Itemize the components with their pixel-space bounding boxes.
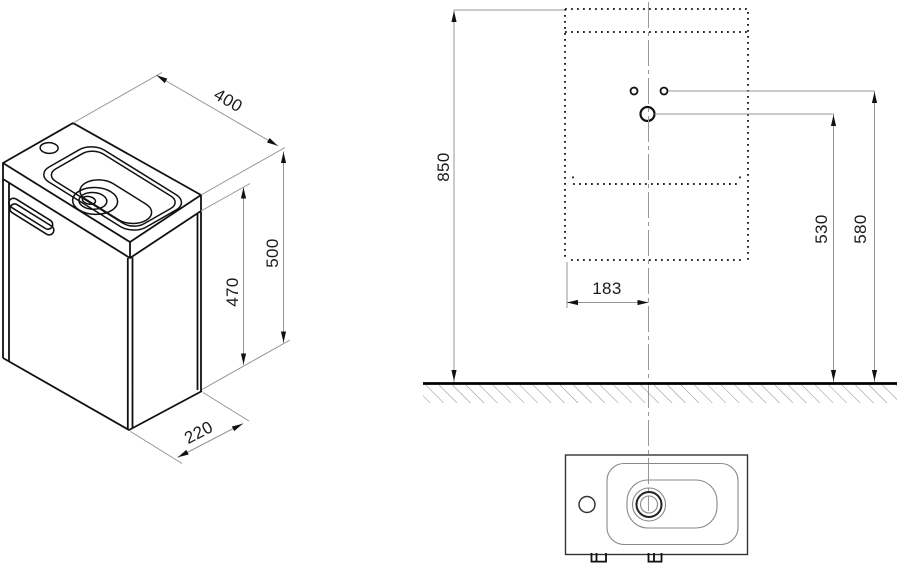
arrow-580-top — [872, 92, 877, 103]
dim-label-holes-height: 580 — [851, 199, 871, 259]
top-view — [566, 455, 748, 562]
arrow-530-top — [831, 115, 836, 126]
bowl-outer-rim — [36, 142, 189, 234]
cabinet-body-edges — [3, 179, 202, 430]
basin-outline-plan — [566, 455, 748, 555]
dim-label-faucet-height: 530 — [812, 199, 832, 259]
arrow-850-bottom — [451, 370, 456, 381]
faucet-hole — [641, 107, 655, 121]
elevation-dimension-lines — [454, 10, 875, 382]
tap-hole-plan — [579, 497, 595, 513]
dim-label-cabinet-height: 470 — [223, 262, 243, 322]
dim-label-install-height: 850 — [434, 137, 454, 197]
dim-label-total-height: 500 — [263, 223, 283, 283]
arrow-470-top — [241, 188, 246, 199]
technical-drawing-canvas: 400 500 470 220 850 530 580 183 — [0, 0, 900, 564]
arrow-500-top — [281, 152, 286, 163]
fixing-hole-left — [631, 88, 638, 95]
arrow-580-bottom — [872, 370, 877, 381]
bowl-bottom — [72, 175, 160, 228]
drawing-linework — [0, 0, 900, 564]
isometric-view — [3, 123, 202, 430]
ext-line-bottom-shared — [202, 340, 290, 390]
arrow-183-right — [638, 300, 649, 305]
mounting-outline-dotted — [565, 9, 748, 260]
outline-corner-dots — [573, 177, 740, 179]
elevation-dimension-arrows — [451, 11, 877, 381]
arrow-220-right — [232, 421, 244, 431]
arrow-530-bottom — [831, 370, 836, 381]
fixing-hole-right — [661, 88, 668, 95]
arrow-400-left — [155, 73, 167, 83]
isometric-dimension-lines — [73, 73, 290, 464]
arrow-183-left — [567, 300, 578, 305]
door-handle — [5, 197, 58, 237]
arrow-500-bottom — [281, 332, 286, 343]
floor-hatch — [423, 385, 897, 403]
arrow-850-top — [451, 11, 456, 22]
dim-label-center-offset: 183 — [577, 279, 637, 299]
elevation-view — [565, 9, 748, 260]
ext-line-400-left — [73, 73, 162, 124]
arrow-400-right — [267, 138, 279, 148]
arrow-470-bottom — [241, 354, 246, 365]
cabinet-top-face — [3, 123, 201, 242]
